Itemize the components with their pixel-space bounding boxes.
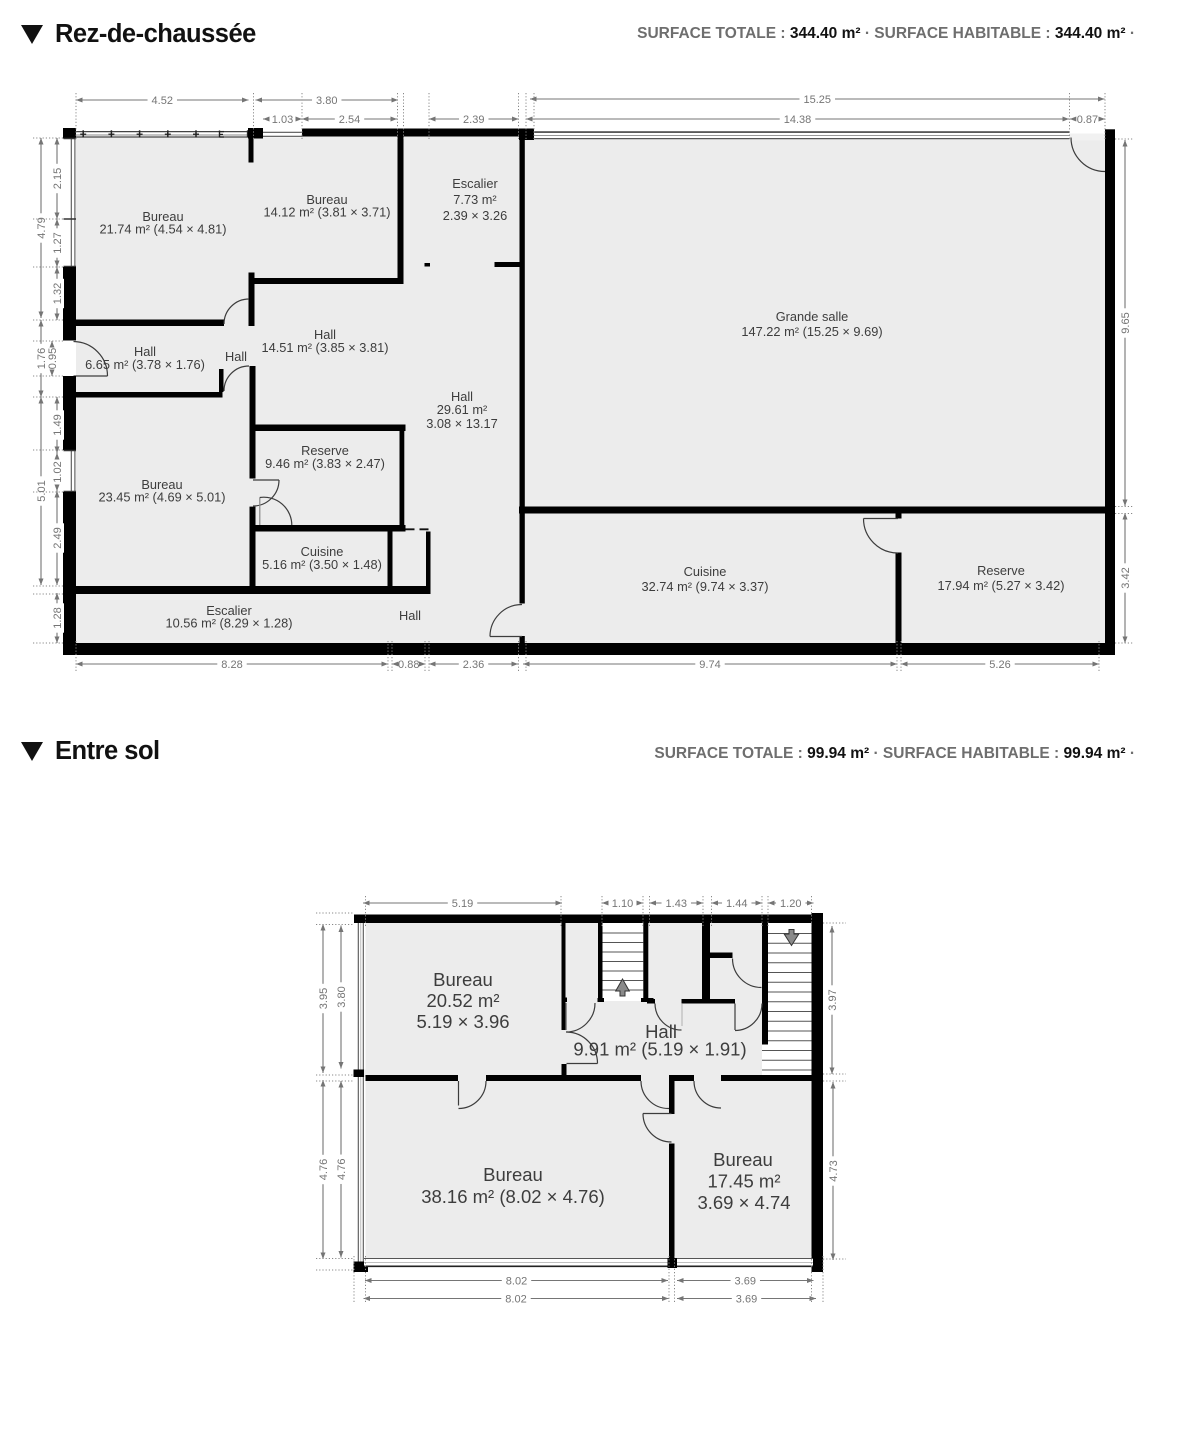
svg-text:5.01: 5.01 — [36, 480, 48, 501]
svg-text:8.02: 8.02 — [505, 1294, 526, 1306]
svg-text:20.52 m²: 20.52 m² — [426, 990, 499, 1011]
svg-text:1.44: 1.44 — [726, 898, 747, 910]
svg-text:5.26: 5.26 — [989, 659, 1010, 671]
svg-text:38.16 m² (8.02 × 4.76): 38.16 m² (8.02 × 4.76) — [421, 1186, 605, 1207]
svg-text:147.22 m² (15.25 × 9.69): 147.22 m² (15.25 × 9.69) — [741, 324, 882, 339]
svg-text:5.19: 5.19 — [452, 898, 473, 910]
svg-text:Escalier: Escalier — [452, 176, 498, 191]
svg-text:2.39 × 3.26: 2.39 × 3.26 — [443, 208, 507, 223]
svg-text:2.15: 2.15 — [52, 168, 64, 189]
svg-text:4.76: 4.76 — [336, 1159, 348, 1180]
svg-text:0.88: 0.88 — [398, 659, 419, 671]
svg-text:3.69: 3.69 — [735, 1276, 756, 1288]
svg-text:4.73: 4.73 — [828, 1160, 840, 1181]
svg-text:17.45 m²: 17.45 m² — [707, 1171, 780, 1192]
svg-text:1.20: 1.20 — [780, 898, 801, 910]
svg-text:29.61 m²: 29.61 m² — [437, 402, 488, 417]
svg-text:9.74: 9.74 — [699, 659, 720, 671]
svg-text:Grande salle: Grande salle — [776, 309, 849, 324]
svg-text:3.69 × 4.74: 3.69 × 4.74 — [697, 1192, 790, 1213]
svg-text:15.25: 15.25 — [803, 94, 831, 106]
svg-text:3.97: 3.97 — [827, 989, 839, 1010]
svg-text:2.54: 2.54 — [339, 114, 360, 126]
svg-text:3.95: 3.95 — [318, 988, 330, 1009]
svg-text:7.73 m²: 7.73 m² — [453, 192, 497, 207]
svg-text:0.87: 0.87 — [1077, 114, 1098, 126]
svg-text:1.02: 1.02 — [52, 461, 64, 482]
svg-text:2.39: 2.39 — [463, 114, 484, 126]
svg-text:4.79: 4.79 — [36, 217, 48, 238]
svg-text:8.28: 8.28 — [221, 659, 242, 671]
svg-text:2.49: 2.49 — [52, 527, 64, 548]
svg-text:17.94 m² (5.27 × 3.42): 17.94 m² (5.27 × 3.42) — [938, 578, 1065, 593]
svg-text:Reserve: Reserve — [977, 563, 1025, 578]
svg-text:14.38: 14.38 — [784, 114, 812, 126]
svg-text:1.03: 1.03 — [272, 114, 293, 126]
svg-text:3.80: 3.80 — [336, 986, 348, 1007]
svg-text:4.76: 4.76 — [318, 1159, 330, 1180]
svg-text:0.95: 0.95 — [47, 348, 59, 369]
svg-text:Bureau: Bureau — [483, 1164, 543, 1185]
svg-text:8.02: 8.02 — [506, 1276, 527, 1288]
svg-text:Hall: Hall — [399, 608, 421, 623]
svg-text:1.49: 1.49 — [52, 414, 64, 435]
svg-text:1.43: 1.43 — [666, 898, 687, 910]
svg-text:1.27: 1.27 — [52, 232, 64, 253]
svg-text:3.80: 3.80 — [316, 95, 337, 107]
svg-text:14.12 m² (3.81 × 3.71): 14.12 m² (3.81 × 3.71) — [264, 205, 391, 220]
svg-text:Bureau: Bureau — [433, 969, 493, 990]
svg-text:4.52: 4.52 — [152, 95, 173, 107]
svg-text:2.36: 2.36 — [463, 659, 484, 671]
svg-text:1.32: 1.32 — [52, 283, 64, 304]
svg-text:1.28: 1.28 — [52, 607, 64, 628]
svg-text:Cuisine: Cuisine — [684, 564, 727, 579]
svg-text:3.69: 3.69 — [736, 1294, 757, 1306]
svg-text:23.45 m² (4.69 × 5.01): 23.45 m² (4.69 × 5.01) — [99, 490, 226, 505]
svg-text:3.08 × 13.17: 3.08 × 13.17 — [426, 416, 498, 431]
svg-text:9.46 m² (3.83 × 2.47): 9.46 m² (3.83 × 2.47) — [265, 456, 385, 471]
svg-text:5.16 m² (3.50 × 1.48): 5.16 m² (3.50 × 1.48) — [262, 557, 382, 572]
svg-text:21.74 m² (4.54 × 4.81): 21.74 m² (4.54 × 4.81) — [100, 222, 227, 237]
svg-text:1.10: 1.10 — [612, 898, 633, 910]
svg-text:3.42: 3.42 — [1120, 567, 1132, 588]
svg-text:Bureau: Bureau — [713, 1149, 773, 1170]
svg-text:9.91 m² (5.19 × 1.91): 9.91 m² (5.19 × 1.91) — [573, 1039, 746, 1060]
svg-text:10.56 m² (8.29 × 1.28): 10.56 m² (8.29 × 1.28) — [166, 616, 293, 631]
svg-text:5.19 × 3.96: 5.19 × 3.96 — [416, 1011, 509, 1032]
svg-text:14.51 m² (3.85 × 3.81): 14.51 m² (3.85 × 3.81) — [262, 340, 389, 355]
svg-text:6.65 m² (3.78 × 1.76): 6.65 m² (3.78 × 1.76) — [85, 357, 205, 372]
svg-text:Hall: Hall — [225, 349, 247, 364]
svg-text:9.65: 9.65 — [1120, 312, 1132, 333]
svg-text:32.74 m² (9.74 × 3.37): 32.74 m² (9.74 × 3.37) — [642, 579, 769, 594]
